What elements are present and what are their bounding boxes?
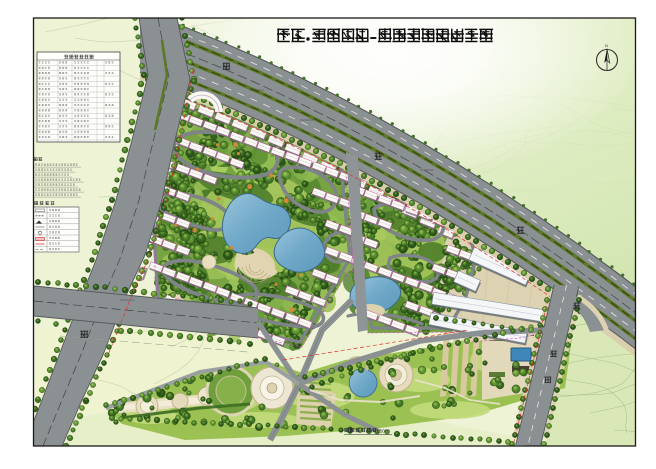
- svg-text:1:1000: 1:1000: [376, 429, 390, 434]
- svg-text:N: N: [605, 43, 608, 48]
